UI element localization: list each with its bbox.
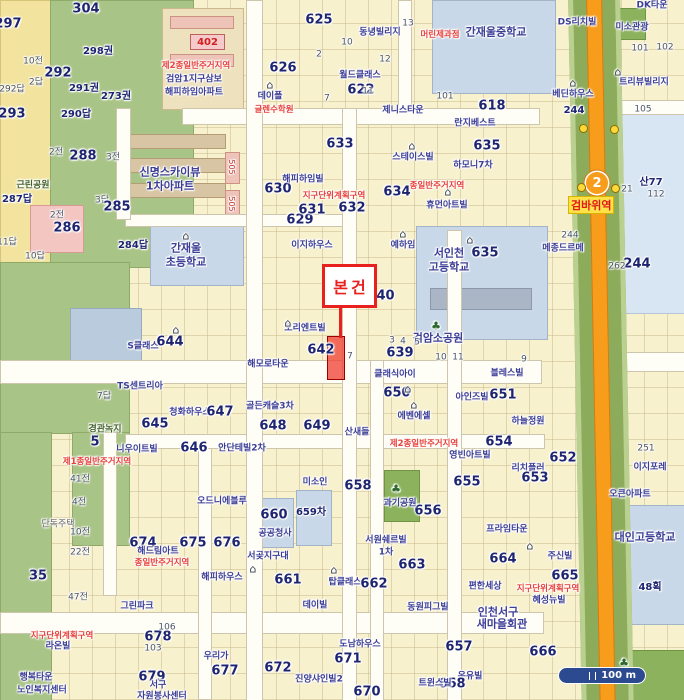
lot-number: 670 [353, 686, 380, 699]
lot-number: 646 [180, 442, 207, 455]
building-659 [296, 490, 332, 546]
lot-number: 산77 [639, 178, 662, 188]
building-name: S클래스 [127, 343, 158, 352]
lot-number: 286 [53, 222, 80, 235]
lot-number: 666 [529, 646, 556, 659]
zone-label: 종일반주거지역 [135, 559, 190, 568]
building-name: 데이빌 [303, 602, 328, 611]
lot-number: 645 [141, 418, 168, 431]
lot-number: 5 [90, 436, 99, 449]
lot-number: 662 [360, 578, 387, 591]
lot-number: 3 [389, 337, 395, 346]
building-name: 예하임 [391, 242, 416, 251]
building-name: 이지포레 [633, 464, 666, 473]
building-name: 프라임타운 [486, 526, 527, 535]
place-name: 검암소공원 [413, 333, 464, 344]
lot-number: 4전 [72, 499, 86, 508]
building-name: 공공청사 [258, 530, 291, 539]
building-name: 미소관광 [615, 24, 648, 33]
lot-number: 642 [307, 344, 334, 357]
scale-tick [589, 672, 590, 680]
lot-number: 671 [334, 653, 361, 666]
lot-number: 41전 [70, 476, 90, 485]
lot-number: 4 [400, 338, 406, 347]
building-name: 해드림아트 [137, 548, 178, 557]
tree-icon: ♣ [391, 484, 401, 495]
apartment-bar [170, 16, 234, 29]
building-name: 노인복지센터 [17, 687, 67, 696]
lot-number: 618 [478, 100, 505, 113]
place-name: 새마을회관 [477, 619, 528, 630]
lot-number: 262 [608, 263, 625, 272]
building-name: 서구 [150, 682, 167, 691]
building-name: 행복타운 [19, 674, 52, 683]
lot-number: 10전 [23, 58, 43, 67]
scale-tick [595, 672, 596, 680]
lot-number: 273권 [101, 92, 131, 102]
building-name: 자원봉사센터 [137, 693, 187, 700]
lot-number: 664 [489, 553, 516, 566]
lot-number: 659차 [296, 508, 326, 518]
lot-number: 285 [103, 201, 130, 214]
building-name: 해피하임빌 [282, 176, 323, 185]
building-name: 해모로타운 [247, 361, 288, 370]
lot-number: 676 [213, 537, 240, 550]
lot-number: 35 [29, 570, 47, 583]
lot-number: 10답 [25, 253, 45, 262]
station-exit-marker [611, 184, 620, 193]
house-icon: ⌂ [250, 564, 257, 575]
zone-label: 제2종일반주거지역 [390, 440, 458, 449]
lot-number: 654 [485, 436, 512, 449]
lot-number: 48획 [638, 583, 661, 593]
lot-number: 632 [338, 202, 365, 215]
building-name: 아인즈빌 [455, 394, 488, 403]
scale-label: 100 m [601, 670, 636, 681]
subway-line-2 [586, 0, 616, 700]
house-icon: ⌂ [570, 78, 577, 89]
lot-number: 287답 [2, 195, 32, 205]
lot-number: 665 [551, 570, 578, 583]
lot-number: 2전 [49, 149, 63, 158]
building-name: 블레스빌 [490, 370, 523, 379]
building-name: 그린파크 [120, 603, 153, 612]
lot-number: 660 [260, 509, 287, 522]
building-name: 스테이스빌 [392, 154, 433, 163]
building-name: 영빈아트빌 [449, 452, 490, 461]
lot-number: 22전 [70, 549, 90, 558]
zone-label: 머린제과점 [420, 31, 459, 40]
lot-number: 663 [398, 559, 425, 572]
house-icon: ⌂ [445, 187, 452, 198]
lot-number: 7답 [97, 393, 111, 402]
zone-label: 제2종일반주거지역 [162, 62, 230, 71]
building-name: 서곶지구대 [247, 553, 288, 562]
building-name: 미소인 [303, 479, 328, 488]
lot-number: 661 [274, 574, 301, 587]
zone-label: 지구단위계획구역 [517, 585, 580, 594]
lot-number: 105 [634, 106, 651, 115]
lot-number: 298권 [83, 47, 113, 57]
lot-number: 639 [386, 347, 413, 360]
parcel-8 [70, 308, 142, 364]
building-name: 하늘정원 [511, 418, 544, 427]
building-name: 에벤에셀 [397, 413, 430, 422]
house-icon: ⌂ [285, 318, 292, 329]
lot-number: 102 [656, 44, 673, 53]
station-exit-marker [577, 183, 586, 192]
lot-number: 297 [0, 18, 22, 31]
building-name: 베딘하우스 [552, 91, 593, 100]
building-name: 데이플 [258, 93, 283, 102]
lot-number: 7 [347, 353, 353, 362]
lot-number: 112 [647, 191, 664, 200]
lot-number: 13 [402, 20, 413, 29]
place-name: 인천서구 [478, 607, 518, 618]
building-name: 탑클래스 [328, 579, 361, 588]
lot-number: 251 [637, 445, 654, 454]
apartment-number-badge: 402 [190, 34, 225, 50]
building-name: 우리가 [204, 653, 229, 662]
place-name: 간재울중학교 [466, 27, 527, 38]
house-icon: ⌂ [615, 67, 622, 78]
lot-number: 11답 [0, 239, 17, 248]
zone-label: 지구단위계획구역 [303, 192, 366, 201]
lot-number: 651 [489, 389, 516, 402]
building-name: 검암1지구삼보 [166, 76, 222, 85]
building-name: 동원피그빌 [407, 604, 448, 613]
lot-number: 10 [435, 354, 446, 363]
building-name: 청화하우스 [169, 409, 210, 418]
place-name: 서인천 [434, 248, 464, 259]
lot-number: 2전 [50, 212, 64, 221]
place-name: 대인고등학교 [615, 532, 676, 543]
green-strip-sw1 [0, 432, 52, 700]
zone-label: 지구단위계획구역 [31, 632, 94, 641]
tree-icon: ♣ [431, 321, 441, 332]
house-icon: ⌂ [267, 80, 274, 91]
building-name: 주신빌 [548, 553, 573, 562]
building-name: 메종드르메 [542, 245, 583, 254]
building-name: 오큰아파트 [609, 491, 650, 500]
lot-number: 647 [206, 406, 233, 419]
building-name: 제니스타운 [382, 107, 423, 116]
house-icon: ⌂ [400, 229, 407, 240]
lot-number: 677 [211, 665, 238, 678]
place-name: 초등학교 [166, 257, 206, 268]
lot-number: 10 [341, 39, 352, 48]
house-icon: ⌂ [411, 400, 418, 411]
lot-number: 7 [324, 95, 330, 104]
building-name: 도남하우스 [339, 641, 380, 650]
lot-number: 293 [0, 108, 26, 121]
building-name: 산새들 [345, 429, 370, 438]
lot-number: 12 [379, 56, 390, 65]
lot-number: 2답 [29, 79, 43, 88]
lot-number: 291권 [69, 84, 99, 94]
house-icon: ⌂ [173, 325, 180, 336]
lot-number: 11 [362, 88, 373, 97]
lot-number: 631 [298, 204, 325, 217]
scale-bar: 100 m [558, 667, 646, 684]
house-icon: ⌂ [467, 235, 474, 246]
lot-number: 648 [259, 420, 286, 433]
lot-number: 103 [144, 645, 161, 654]
map-canvas[interactable]: 402 본건 2 검바위역 100 m 304297298권292291권273… [0, 0, 684, 700]
building-name: 란지베스트 [454, 120, 495, 129]
building-name: 월드클래스 [339, 72, 380, 81]
area-label: 경관녹지 [88, 426, 121, 435]
station-exit-marker [610, 125, 619, 134]
building-name: 서원쉐르빌 [365, 537, 406, 546]
building-name: 클래식아이 [374, 371, 415, 380]
zone-label: 글렌수학원 [254, 106, 293, 115]
building-name: 편한세상 [468, 583, 501, 592]
school-building [430, 288, 532, 310]
building-name: 트리뷰빌리지 [619, 79, 669, 88]
building-name: 트윈스빌 [418, 680, 451, 689]
lot-number: 657 [445, 641, 472, 654]
lot-number: 644 [156, 336, 183, 349]
road-vertical-top [398, 0, 412, 112]
building-name: 라온빌 [46, 643, 71, 652]
lot-number: 292답 [0, 86, 25, 95]
station-name[interactable]: 검바위역 [568, 196, 614, 214]
lot-number: 10전 [70, 529, 90, 538]
station-exit-marker [579, 124, 588, 133]
lot-number: 635 [473, 140, 500, 153]
lot-number: 101 [631, 45, 648, 54]
lot-number: 675 [179, 537, 206, 550]
house-icon: ⌂ [331, 565, 338, 576]
lot-number: 244 [623, 258, 650, 271]
lot-number: 9 [521, 356, 527, 365]
lot-number: 633 [326, 138, 353, 151]
road-vertical-center-e [447, 230, 462, 700]
school-ganjaeul-middle [432, 0, 556, 94]
building-name: 1차 [379, 549, 394, 558]
lot-number: 653 [521, 472, 548, 485]
lot-number: 652 [549, 452, 576, 465]
lot-number: 634 [383, 186, 410, 199]
building-name: 하모니7차 [453, 162, 492, 171]
building-name: 안단테빌2차 [218, 445, 266, 454]
building-name: 휴먼아트빌 [426, 202, 467, 211]
lot-number: 106 [158, 624, 175, 633]
house-icon: ⌂ [527, 541, 534, 552]
lot-number: 649 [303, 420, 330, 433]
building-name: 니우이트빌 [116, 446, 157, 455]
building-name: 오드니에블루 [197, 498, 247, 507]
lot-number: 11 [452, 354, 463, 363]
building-name: 혜성뉴빌 [532, 597, 565, 606]
building-name: 이지하우스 [291, 242, 332, 251]
building-name: 진양샤인빌2 [295, 676, 343, 685]
lot-number: 655 [453, 476, 480, 489]
place-name: 신명스카이뷰 [140, 167, 201, 178]
building-name: 해피하임아파트 [165, 89, 223, 98]
place-name: 고등학교 [429, 262, 469, 273]
house-icon: ⌂ [405, 384, 412, 395]
subway-line-badge[interactable]: 2 [586, 172, 608, 194]
lot-number: 290답 [61, 110, 91, 120]
building-name: TS센트리아 [117, 383, 163, 392]
lot-number: 3전 [106, 154, 120, 163]
area-label: 근린공원 [16, 182, 49, 191]
lot-number: 244 [564, 106, 585, 116]
building-number-vertical: 505 [227, 196, 235, 211]
house-icon: ⌂ [183, 231, 190, 242]
building-name: DK타운 [636, 2, 667, 11]
lot-number: 658 [344, 480, 371, 493]
lot-number: 304 [72, 3, 99, 16]
lot-number: 244 [561, 232, 578, 241]
building-name: 골든캐슬3차 [246, 403, 294, 412]
lot-number: 672 [264, 662, 291, 675]
building-name: 과기공원 [383, 500, 416, 509]
lot-number: 47전 [68, 594, 88, 603]
lot-number: 625 [305, 14, 332, 27]
building-name: 동녕빌리지 [359, 29, 400, 38]
lot-number: 656 [414, 505, 441, 518]
lot-number: 626 [269, 62, 296, 75]
lot-number: 635 [471, 247, 498, 260]
lot-number: 284답 [118, 241, 148, 251]
building-number-vertical: 505 [227, 159, 235, 174]
building-name: 해피하우스 [201, 574, 242, 583]
lot-number: 292 [44, 67, 71, 80]
house-icon: ⌂ [409, 141, 416, 152]
lot-number: 288 [69, 150, 96, 163]
lot-number: 2 [316, 51, 322, 60]
zone-label: 종일반주거지역 [410, 182, 465, 191]
subject-marker[interactable]: 본건 [322, 264, 377, 308]
apartment-bar [130, 134, 226, 149]
field-area-e [620, 112, 684, 314]
place-name: 간재울 [171, 243, 201, 254]
building-name: DS리치빌 [558, 19, 597, 28]
place-name: 1차아파트 [146, 181, 194, 192]
lot-number: 101 [436, 93, 453, 102]
zone-label: 제1종일반주거지역 [63, 458, 131, 467]
lot-number: 21 [621, 186, 632, 195]
lot-number: 5 [414, 339, 420, 348]
